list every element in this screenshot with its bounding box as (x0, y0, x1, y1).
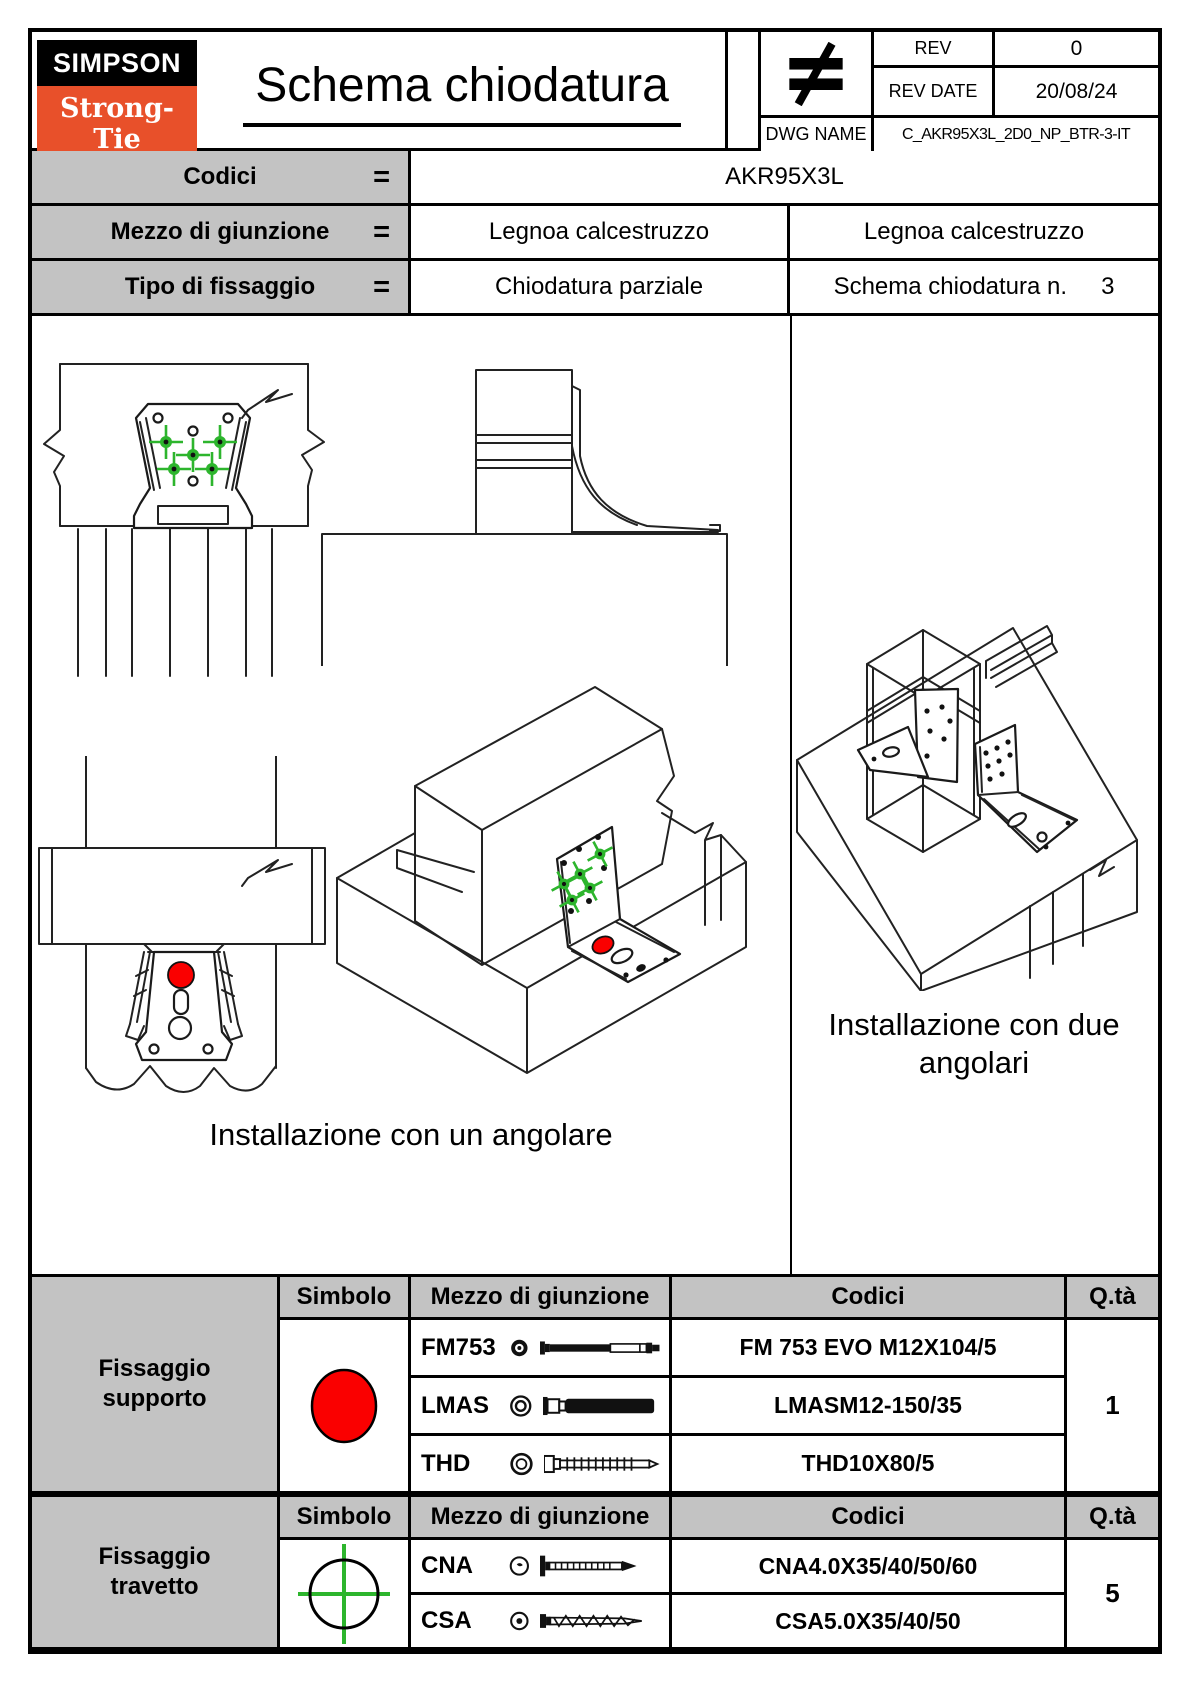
lmas-label: LMAS (421, 1392, 499, 1420)
dwg-name-label: DWG NAME (761, 118, 871, 151)
rev-date-value: 20/08/24 (995, 68, 1158, 115)
equals-sign: = (373, 161, 390, 194)
logo-simpson: SIMPSON (37, 40, 197, 86)
joist-fastener-table: Fissaggio travetto Simbolo Mezzo di giun… (32, 1494, 1158, 1650)
col-mezzo: Mezzo di giunzione (411, 1277, 669, 1317)
mezzo-value-left: Legnoa calcestruzzo (411, 206, 787, 258)
revision-table: REV 0 REV DATE 20/08/24 DWG NAME C_AKR95… (758, 32, 1158, 151)
support-group-cell: Fissaggio supporto (32, 1277, 277, 1491)
drawing-divider (790, 316, 792, 1274)
col-codici: Codici (672, 1277, 1064, 1317)
caption-two-brackets: Installazione con due angolari (794, 1006, 1154, 1082)
fm753-row: FM753 (411, 1320, 669, 1375)
support-group-label: Fissaggio supporto (90, 1354, 220, 1414)
fm753-label: FM753 (421, 1334, 499, 1362)
thd-label: THD (421, 1450, 499, 1478)
joist-group-label: Fissaggio travetto (90, 1542, 220, 1602)
sheet-frame: SIMPSON Strong-Tie ® Schema chiodatura R… (28, 28, 1162, 1654)
fm753-bolt-icon (540, 1335, 669, 1361)
lmas-code: LMASM12-150/35 (672, 1378, 1064, 1433)
lmas-row: LMAS (411, 1378, 669, 1433)
drawing-area: Installazione con un angolare Installazi… (32, 316, 1158, 1274)
equals-sign: = (373, 271, 390, 304)
thd-code: THD10X80/5 (672, 1436, 1064, 1491)
support-fastener-table: Fissaggio supporto Simbolo Mezzo di giun… (32, 1274, 1158, 1494)
drawing-sheet: SIMPSON Strong-Tie ® Schema chiodatura R… (0, 0, 1190, 1682)
cna-nail-icon (540, 1553, 669, 1579)
bracket-profile (572, 386, 720, 532)
lmas-anchor-icon (543, 1392, 670, 1420)
cna-code: CNA4.0X35/40/50/60 (672, 1540, 1064, 1592)
iso-one-bracket-drawing (317, 611, 782, 1111)
slot-hole (174, 990, 188, 1014)
page-title: Schema chiodatura (202, 58, 722, 127)
angle-bracket (545, 827, 680, 982)
col-codici: Codici (672, 1497, 1064, 1537)
support-qty: 1 (1067, 1320, 1158, 1491)
col-simbolo: Simbolo (280, 1277, 408, 1317)
csa-label: CSA (421, 1607, 499, 1635)
cna-head-icon (509, 1554, 530, 1578)
projection-symbol-cell (761, 32, 871, 115)
front-view-drawing (32, 756, 337, 1106)
logo-strongtie-text: Strong-Tie (60, 93, 174, 155)
rev-value: 0 (995, 32, 1158, 65)
caption-one-bracket: Installazione con un angolare (32, 1116, 790, 1154)
iso-two-brackets-drawing (794, 561, 1156, 991)
schema-number: 3 (1101, 273, 1114, 301)
codici-label: Codici (183, 163, 256, 191)
tipo-label-cell: Tipo di fissaggio = (32, 261, 408, 313)
angle-bracket-right (975, 725, 1077, 852)
joist-symbol-cell (280, 1540, 408, 1647)
codici-label-cell: Codici = (32, 151, 408, 203)
rev-label: REV (874, 32, 992, 65)
col-mezzo: Mezzo di giunzione (411, 1497, 669, 1537)
wood-beam (397, 687, 674, 965)
simpson-strongtie-logo: SIMPSON Strong-Tie ® (37, 40, 197, 163)
mezzo-label-cell: Mezzo di giunzione = (32, 206, 408, 258)
mezzo-value-right: Legnoa calcestruzzo (790, 206, 1158, 258)
support-symbol-cell (280, 1320, 408, 1491)
csa-head-icon (509, 1609, 530, 1633)
green-crosshair-symbol (292, 1542, 396, 1646)
col-qta: Q.tà (1067, 1277, 1158, 1317)
red-circle-symbol (304, 1361, 384, 1451)
joist-qty: 5 (1067, 1540, 1158, 1647)
schema-label: Schema chiodatura n. (834, 273, 1067, 301)
schema-number-cell: Schema chiodatura n. 3 (790, 261, 1158, 313)
codici-value: AKR95X3L (411, 151, 1158, 203)
mezzo-label: Mezzo di giunzione (111, 218, 330, 246)
lmas-head-icon (509, 1393, 533, 1419)
fm753-code: FM 753 EVO M12X104/5 (672, 1320, 1064, 1375)
thd-row: THD (411, 1436, 669, 1491)
dwg-name-value: C_AKR95X3L_2D0_NP_BTR-3-IT (874, 118, 1158, 151)
joist-group-cell: Fissaggio travetto (32, 1497, 277, 1647)
anchor-marker (168, 962, 194, 988)
csa-row: CSA (411, 1595, 669, 1647)
col-qta: Q.tà (1067, 1497, 1158, 1537)
info-table: Codici = AKR95X3L Mezzo di giunzione = L… (32, 151, 1158, 316)
header-divider (725, 32, 728, 151)
thd-screw-icon (544, 1451, 669, 1477)
not-equal-projection-icon (776, 42, 856, 106)
csa-code: CSA5.0X35/40/50 (672, 1595, 1064, 1647)
fm753-head-icon (509, 1336, 530, 1360)
thd-head-icon (509, 1450, 534, 1478)
cna-row: CNA (411, 1540, 669, 1592)
tipo-value: Chiodatura parziale (411, 261, 787, 313)
tipo-label: Tipo di fissaggio (125, 273, 315, 301)
rev-date-label: REV DATE (874, 68, 992, 115)
equals-sign: = (373, 216, 390, 249)
csa-screw-icon (540, 1607, 669, 1635)
page-title-text: Schema chiodatura (243, 58, 681, 127)
cna-label: CNA (421, 1552, 499, 1580)
col-simbolo: Simbolo (280, 1497, 408, 1537)
